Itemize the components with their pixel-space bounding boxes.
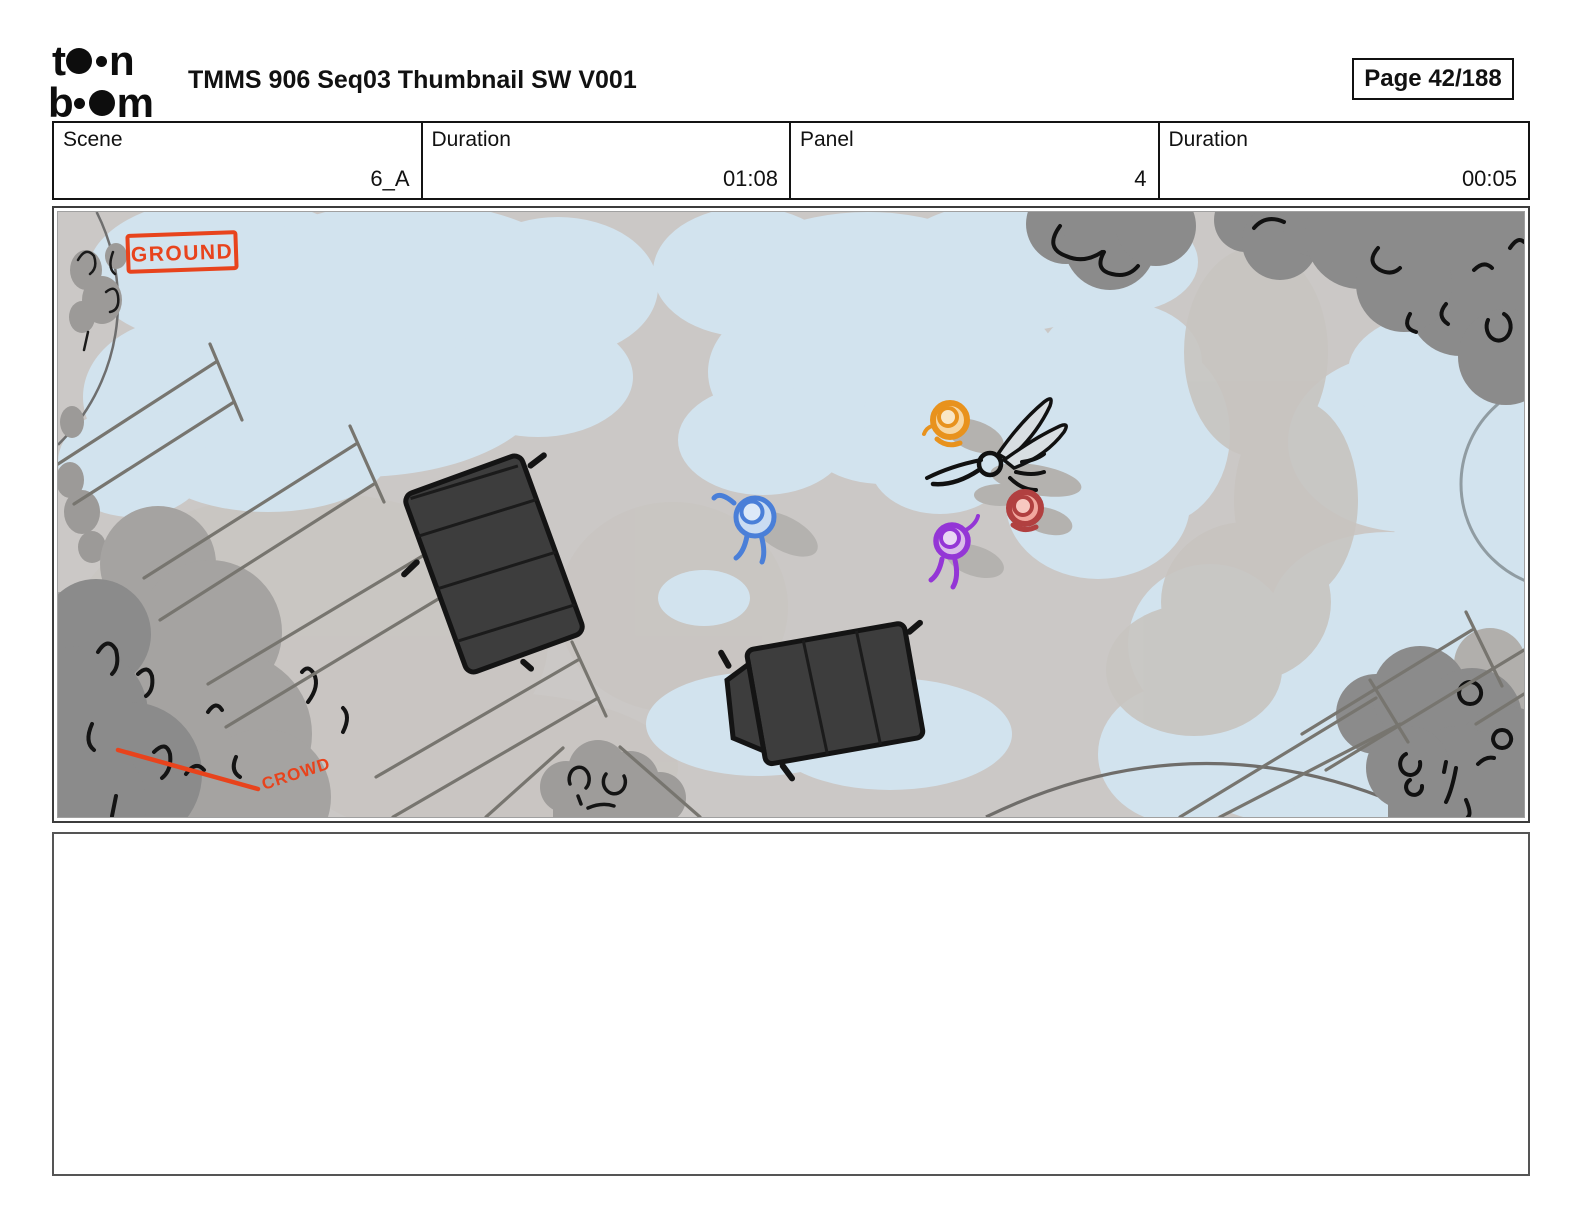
scene-duration-value: 01:08 (723, 166, 778, 192)
scene-cell: Scene 6_A (54, 123, 423, 198)
logo-dot-icon (74, 98, 85, 109)
panel-duration-value: 00:05 (1462, 166, 1517, 192)
page-number: Page 42/188 (1352, 58, 1514, 100)
storyboard-panel: GROUND CROWD (52, 206, 1530, 823)
panel-drawing: GROUND CROWD (58, 212, 1524, 817)
info-table: Scene 6_A Duration 01:08 Panel 4 Duratio… (52, 121, 1530, 200)
toonboom-logo: tn bm (52, 40, 152, 124)
annotation-ground-label: GROUND (131, 240, 234, 267)
logo-dot-icon (89, 90, 115, 116)
panel-duration-cell: Duration 00:05 (1160, 123, 1529, 198)
scene-duration-cell: Duration 01:08 (423, 123, 792, 198)
caption-box (52, 832, 1530, 1176)
toonboom-logo-line2: bm (48, 82, 152, 124)
logo-dot-icon (96, 56, 107, 67)
panel-value: 4 (1134, 166, 1146, 192)
scene-label: Scene (63, 128, 123, 152)
logo-dot-icon (66, 48, 92, 74)
panel-cell: Panel 4 (791, 123, 1160, 198)
storyboard-panel-inner: GROUND CROWD (57, 211, 1525, 818)
panel-duration-label: Duration (1169, 128, 1248, 152)
panel-label: Panel (800, 128, 854, 152)
board-title: TMMS 906 Seq03 Thumbnail SW V001 (188, 66, 637, 95)
toonboom-logo-line1: tn (52, 40, 152, 82)
scene-value: 6_A (370, 166, 409, 192)
scene-duration-label: Duration (432, 128, 511, 152)
